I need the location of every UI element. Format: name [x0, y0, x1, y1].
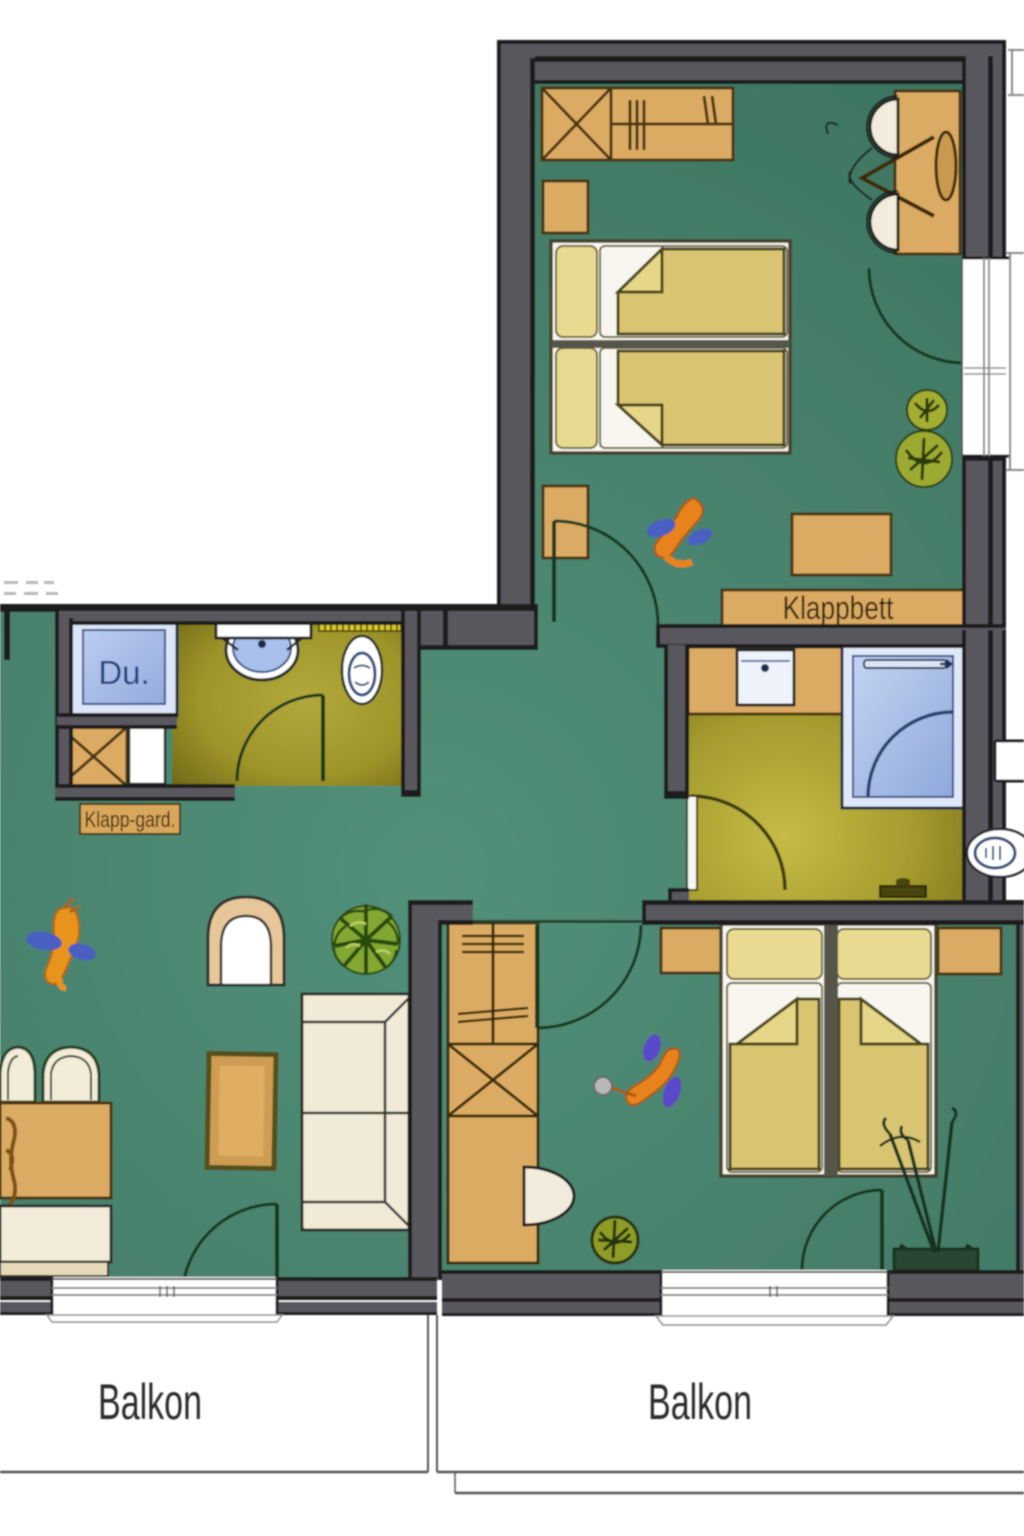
svg-text:Klapp-gard.: Klapp-gard. — [85, 808, 176, 832]
svg-text:Balkon: Balkon — [98, 1375, 202, 1431]
svg-text:Klappbett: Klappbett — [783, 592, 894, 627]
svg-text:Du.: Du. — [98, 654, 149, 691]
svg-text:Balkon: Balkon — [648, 1375, 752, 1431]
